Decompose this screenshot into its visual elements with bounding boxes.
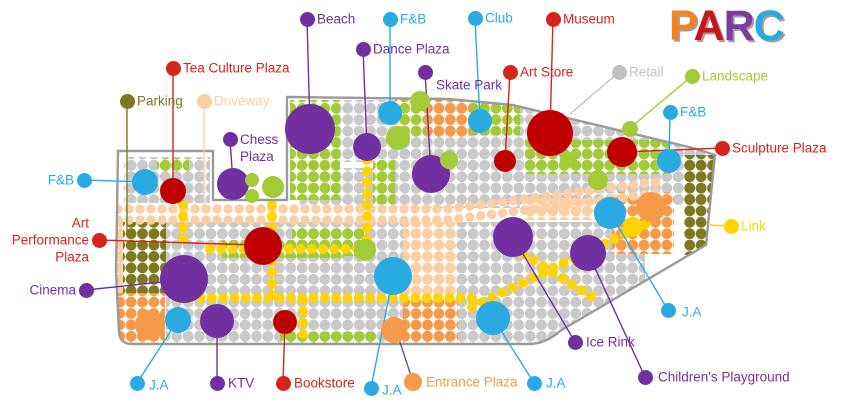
fnb-left-circle [132,169,158,195]
label-line-retail [570,72,619,114]
green-circle [262,176,284,198]
fnb-top-circle [378,101,402,125]
chess-plaza-circle [217,168,249,200]
museum-circle [527,110,573,156]
green-circle [440,151,458,169]
ja-circle [594,197,626,229]
green-circle [560,152,576,168]
link-circle [623,217,643,237]
parc-park-map-page: BeachF&BClubMuseumDance PlazaSkate ParkT… [0,0,850,406]
childrens-playground-circle [570,235,606,271]
green-circle [386,126,410,150]
dot-region-green [373,160,395,204]
logo-letter-r: R [724,2,754,50]
green-circle [588,170,608,190]
dot-region-olive [684,155,717,255]
club-circle [468,109,492,133]
green-circle [410,91,430,111]
parc-logo: PARC [669,2,784,51]
bookstore-circle [273,310,297,334]
dot-region-peach [97,222,123,294]
ja-circle [476,301,510,335]
label-line-landscape [630,76,692,128]
label-line-link [710,225,731,226]
logo-letter-a: A [694,2,724,50]
ice-rink-circle [493,217,533,257]
art-performance-circle [244,227,282,265]
entrance-circle [381,317,407,343]
park-map-canvas [0,0,850,406]
dot-region-green [280,332,376,344]
green-circle [354,239,376,261]
tea-culture-circle [160,178,186,204]
dance-plaza-circle [353,133,381,161]
art-store-circle [494,150,516,172]
green-circle [245,173,259,187]
dot-region-peach [403,222,457,302]
fnb-right-circle [657,149,681,173]
ja-circle [374,257,412,295]
orange-circle [135,310,165,340]
cinema-circle [160,255,208,303]
ktv-circle [200,304,234,338]
green-circle [245,189,259,203]
ja-circle [165,307,191,333]
beach-circle [285,104,335,154]
logo-letter-c: C [754,2,784,50]
green-circle [622,121,638,137]
logo-letter-p: P [669,2,694,50]
sculpture-circle [607,137,637,167]
orange-circle [636,192,666,222]
dot-region-orange [403,300,458,344]
